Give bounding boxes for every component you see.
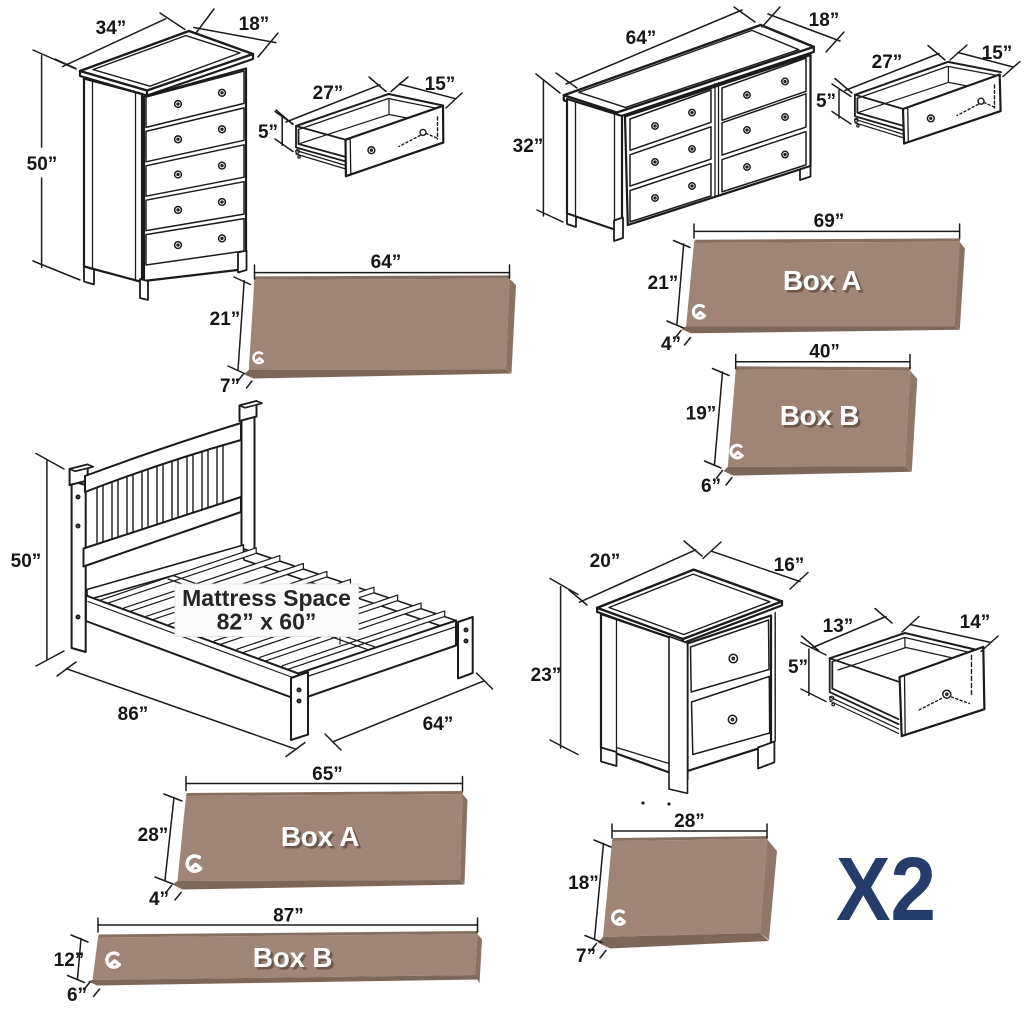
svg-text:12”: 12” (54, 950, 85, 971)
svg-text:21”: 21” (210, 309, 241, 330)
svg-text:27”: 27” (872, 52, 903, 73)
svg-text:18”: 18” (809, 10, 840, 31)
svg-text:21”: 21” (648, 273, 679, 294)
svg-text:4”: 4” (661, 334, 681, 355)
svg-text:Box A: Box A (783, 265, 861, 296)
svg-text:Mattress Space: Mattress Space (182, 585, 351, 611)
svg-text:13”: 13” (823, 616, 854, 637)
svg-text:14”: 14” (960, 612, 991, 633)
svg-text:7”: 7” (220, 376, 240, 397)
svg-text:87”: 87” (273, 906, 304, 927)
svg-text:50”: 50” (27, 154, 58, 175)
svg-text:Box B: Box B (780, 400, 859, 431)
svg-text:18”: 18” (568, 873, 599, 894)
svg-text:Box A: Box A (281, 821, 359, 852)
svg-text:34”: 34” (96, 18, 127, 39)
svg-text:86”: 86” (118, 704, 149, 725)
svg-text:20”: 20” (590, 551, 621, 572)
svg-text:Box B: Box B (253, 942, 332, 973)
svg-text:40”: 40” (809, 342, 840, 363)
svg-text:50”: 50” (11, 551, 42, 572)
svg-text:7”: 7” (576, 946, 596, 967)
svg-text:6”: 6” (701, 476, 721, 497)
svg-text:65”: 65” (312, 764, 343, 785)
svg-text:27”: 27” (313, 83, 344, 104)
svg-text:28”: 28” (674, 811, 705, 832)
svg-text:64”: 64” (626, 28, 657, 49)
svg-text:X2: X2 (836, 840, 936, 940)
svg-text:69”: 69” (814, 211, 845, 232)
svg-text:16”: 16” (774, 555, 805, 576)
svg-text:4”: 4” (149, 889, 169, 910)
svg-text:6”: 6” (67, 985, 87, 1006)
svg-text:18”: 18” (239, 14, 270, 35)
svg-text:23”: 23” (531, 665, 562, 686)
svg-text:5”: 5” (788, 657, 808, 678)
svg-text:28”: 28” (138, 825, 169, 846)
svg-text:5”: 5” (258, 122, 278, 143)
svg-text:19”: 19” (686, 404, 717, 425)
svg-text:15”: 15” (425, 74, 456, 95)
svg-text:32”: 32” (513, 136, 544, 157)
svg-text:64”: 64” (423, 714, 454, 735)
svg-text:82” x 60”: 82” x 60” (217, 609, 317, 635)
svg-text:15”: 15” (982, 43, 1013, 64)
svg-text:64”: 64” (371, 252, 402, 273)
svg-text:5”: 5” (816, 91, 836, 112)
